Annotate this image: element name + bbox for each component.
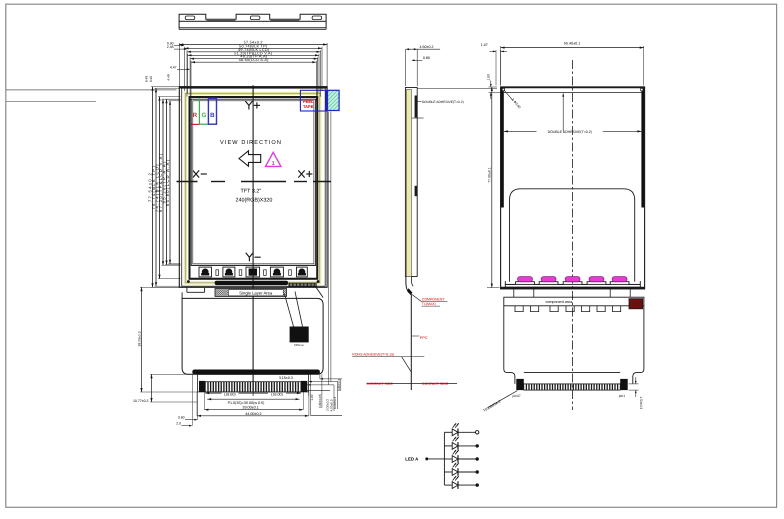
svg-text:44.00±0.2: 44.00±0.2 — [245, 412, 261, 416]
svg-text:(18.00): (18.00) — [224, 392, 236, 396]
svg-text:P1.0(36)=36.00(w 0.5): P1.0(36)=36.00(w 0.5) — [228, 401, 265, 405]
svg-text:pin1: pin1 — [619, 394, 625, 398]
svg-text:T1(MAX): T1(MAX) — [422, 302, 436, 306]
svg-text:ROHS ADHESIVE(T=0.15): ROHS ADHESIVE(T=0.15) — [352, 352, 394, 356]
svg-text:1.50±0.3: 1.50±0.3 — [639, 396, 643, 409]
svg-text:39.05±0.3: 39.05±0.3 — [137, 331, 141, 346]
svg-text:LED A: LED A — [405, 456, 419, 461]
svg-text:2.0: 2.0 — [176, 422, 181, 426]
svg-text:39.00±0.1: 39.00±0.1 — [242, 406, 258, 410]
svg-text:G: G — [201, 112, 206, 119]
svg-text:3.15±0.3: 3.15±0.3 — [279, 376, 293, 380]
svg-text:4.47: 4.47 — [170, 65, 177, 69]
svg-text:DOUBLE ADHESIVE(T=0.2): DOUBLE ADHESIVE(T=0.2) — [422, 100, 464, 104]
svg-text:55.40±0.1: 55.40±0.1 — [564, 41, 580, 45]
svg-text:TAPE: TAPE — [303, 104, 314, 109]
svg-text:0.90: 0.90 — [149, 76, 153, 82]
svg-text:77.00±0.1: 77.00±0.1 — [488, 167, 492, 183]
svg-text:1: 1 — [272, 161, 275, 167]
svg-text:B: B — [210, 112, 215, 119]
svg-text:0.80: 0.80 — [423, 56, 430, 60]
svg-text:6.00±0.3: 6.00±0.3 — [333, 397, 337, 409]
svg-text:1.07: 1.07 — [481, 43, 488, 47]
svg-text:DOUBLE ADHESIVE(T=0.2): DOUBLE ADHESIVE(T=0.2) — [548, 130, 592, 134]
svg-text:Stiffener: Stiffener — [294, 343, 304, 347]
svg-text:FPC: FPC — [420, 336, 428, 340]
svg-text:component area: component area — [545, 300, 573, 304]
svg-text:1.00: 1.00 — [310, 394, 314, 400]
svg-text:CONTACT SIDE: CONTACT SIDE — [422, 382, 449, 386]
svg-text:R: R — [193, 112, 198, 119]
svg-text:48.60(LCD A.A): 48.60(LCD A.A) — [239, 58, 270, 62]
svg-text:1.80: 1.80 — [487, 74, 491, 81]
svg-text:(18.00): (18.00) — [271, 392, 283, 396]
svg-text:4.48: 4.48 — [166, 74, 170, 80]
svg-text:COMPONENT: COMPONENT — [422, 298, 446, 302]
svg-text:3.60: 3.60 — [178, 416, 185, 420]
svg-text:4.60±0.2: 4.60±0.2 — [420, 45, 434, 49]
svg-text:240(RGB)X320: 240(RGB)X320 — [235, 198, 272, 204]
svg-text:8.80±0.3: 8.80±0.3 — [337, 379, 341, 391]
svg-text:pin37: pin37 — [513, 394, 521, 398]
svg-text:Single Layer Area: Single Layer Area — [239, 290, 273, 295]
svg-text:CONTACT SIDE: CONTACT SIDE — [367, 382, 394, 386]
svg-text:2.48: 2.48 — [167, 45, 174, 49]
svg-text:10.77±0.3: 10.77±0.3 — [133, 399, 149, 403]
svg-text:6.48: 6.48 — [144, 76, 148, 82]
svg-text:VIEW DIRECTION: VIEW DIRECTION — [220, 140, 282, 146]
svg-text:64.80(LCD A.A): 64.80(LCD A.A) — [165, 159, 170, 207]
svg-text:0.80±0.05: 0.80±0.05 — [318, 394, 322, 408]
svg-text:TFT 3.2": TFT 3.2" — [241, 188, 262, 194]
